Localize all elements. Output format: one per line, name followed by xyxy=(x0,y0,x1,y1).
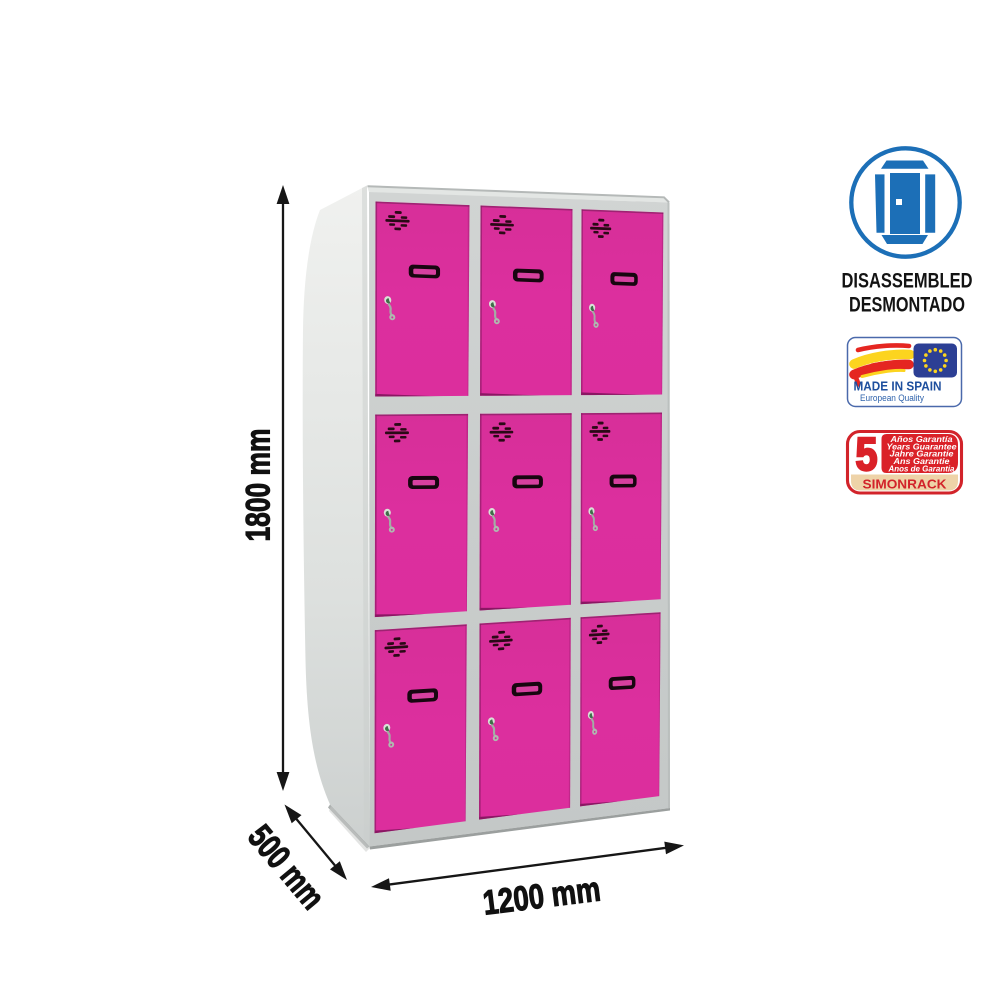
svg-text:MADE IN SPAIN: MADE IN SPAIN xyxy=(854,379,942,394)
svg-text:1800 mm: 1800 mm xyxy=(240,429,278,542)
svg-text:SIMONRACK: SIMONRACK xyxy=(863,477,947,492)
svg-text:5: 5 xyxy=(856,428,878,480)
svg-text:DESMONTADO: DESMONTADO xyxy=(849,293,965,317)
svg-text:European Quality: European Quality xyxy=(860,393,924,404)
svg-text:DISASSEMBLED: DISASSEMBLED xyxy=(842,269,973,293)
svg-text:Anos de Garantia: Anos de Garantia xyxy=(887,464,955,473)
